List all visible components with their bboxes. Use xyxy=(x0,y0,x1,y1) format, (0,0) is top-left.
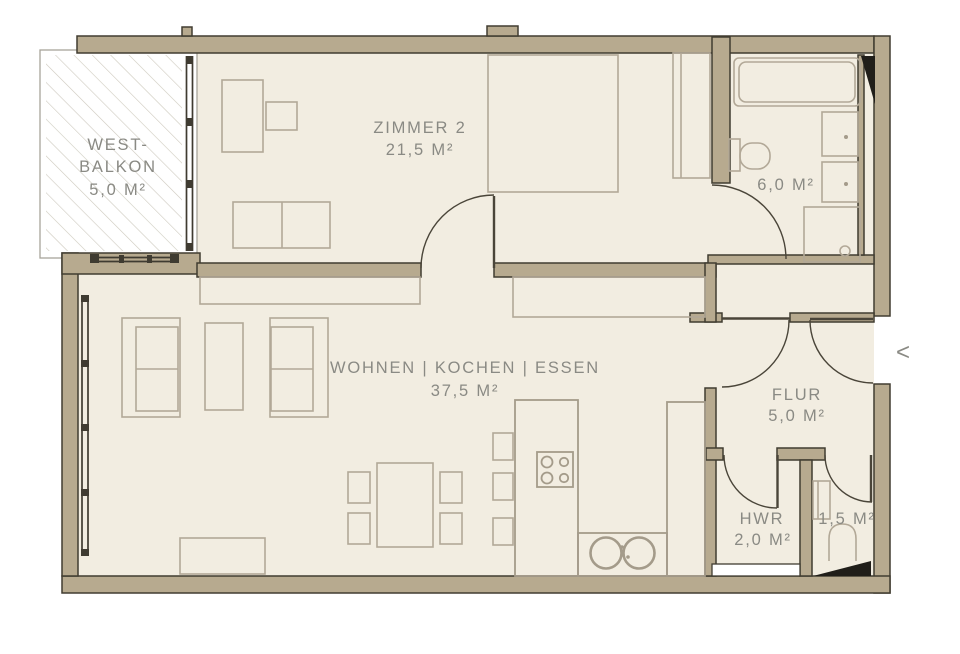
room-label-balkon-line2: BALKON xyxy=(79,158,157,176)
basin-tap xyxy=(844,182,848,186)
floor-plan: WEST- BALKON 5,0 M² ZIMMER 2 21,5 M² WOH… xyxy=(0,0,960,654)
sink-tap xyxy=(620,545,624,549)
window-handle xyxy=(81,360,89,367)
window-handle xyxy=(186,243,193,251)
window-handle xyxy=(186,118,193,126)
wall-left xyxy=(62,253,78,576)
wall-niche-hwr xyxy=(712,564,800,576)
wall-top xyxy=(77,36,874,53)
room-label-wohnen: WOHNEN | KOCHEN | ESSEN xyxy=(330,359,600,377)
railing-post xyxy=(170,254,179,263)
room-area-bad: 6,0 M² xyxy=(757,176,815,194)
window-handle xyxy=(81,424,89,431)
wall-flur-top-right xyxy=(790,313,874,322)
room-label-zimmer2: ZIMMER 2 xyxy=(373,119,466,137)
railing-post xyxy=(147,255,152,263)
room-area-wohnen: 37,5 M² xyxy=(431,382,500,400)
wall-hwr-top-left xyxy=(706,448,723,460)
room-label-hwr: HWR xyxy=(740,510,785,528)
wall-right-lower xyxy=(874,384,890,593)
room-area-zimmer2: 21,5 M² xyxy=(386,141,455,159)
window-handle xyxy=(186,180,193,188)
wall-tick-left xyxy=(182,27,192,36)
room-label-balkon-line1: WEST- xyxy=(87,136,148,154)
wall-hwr-wc-divider xyxy=(800,460,812,576)
railing-post xyxy=(119,255,124,263)
railing-post xyxy=(90,254,99,263)
room-area-balkon: 5,0 M² xyxy=(89,181,147,199)
wall-right-upper xyxy=(874,36,890,316)
window-handle xyxy=(186,56,193,64)
wall-zimmer2-living-right xyxy=(494,263,716,277)
wall-hwr-top-right xyxy=(777,448,825,460)
window-handle xyxy=(81,549,89,556)
balcony xyxy=(40,50,197,258)
wall-zimmer2-living-left xyxy=(197,263,421,277)
window-handle xyxy=(81,295,89,302)
basin-tap xyxy=(844,135,848,139)
window-handle xyxy=(81,489,89,496)
wall-bath-installation xyxy=(712,37,730,183)
entrance-arrow-icon: < xyxy=(896,339,910,366)
sink-tap xyxy=(626,555,630,559)
wall-tick-center xyxy=(487,26,518,36)
wall-living-flur-lower xyxy=(705,388,716,576)
room-area-hwr: 2,0 M² xyxy=(734,531,792,549)
wall-living-flur-upper xyxy=(705,263,716,322)
room-area-wc: 1,5 M² xyxy=(818,510,876,528)
wall-under-balcony xyxy=(62,253,200,274)
floor-plan-page: WEST- BALKON 5,0 M² ZIMMER 2 21,5 M² WOH… xyxy=(0,0,960,654)
room-area-flur: 5,0 M² xyxy=(768,407,826,425)
wall-bottom xyxy=(62,576,890,593)
room-label-flur: FLUR xyxy=(772,386,822,404)
wall-bath-shaft xyxy=(858,55,864,255)
